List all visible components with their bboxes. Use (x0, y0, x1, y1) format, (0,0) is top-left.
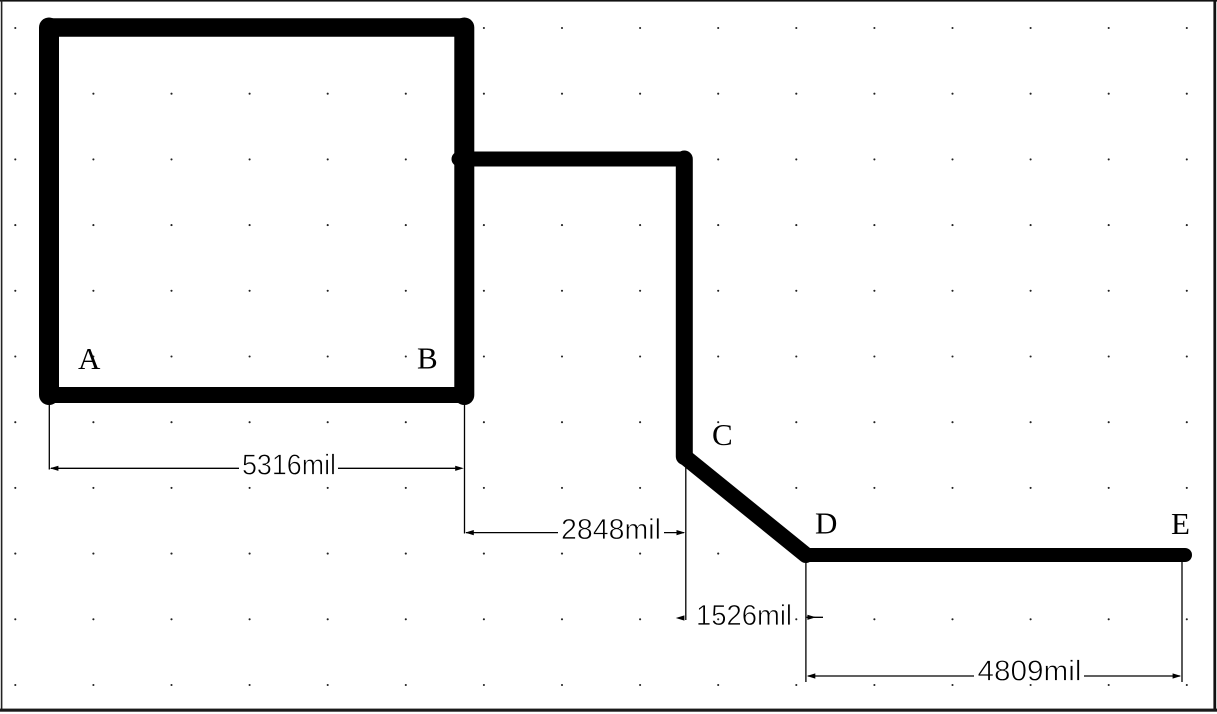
svg-text:B: B (417, 341, 438, 376)
svg-text:C: C (712, 417, 733, 452)
svg-text:E: E (1171, 506, 1190, 541)
svg-text:4809mil: 4809mil (978, 656, 1082, 688)
svg-text:5316mil: 5316mil (242, 450, 336, 482)
svg-text:D: D (815, 506, 837, 541)
svg-text:2848mil: 2848mil (561, 514, 661, 546)
svg-text:A: A (78, 341, 101, 376)
svg-text:1526mil: 1526mil (696, 600, 792, 632)
